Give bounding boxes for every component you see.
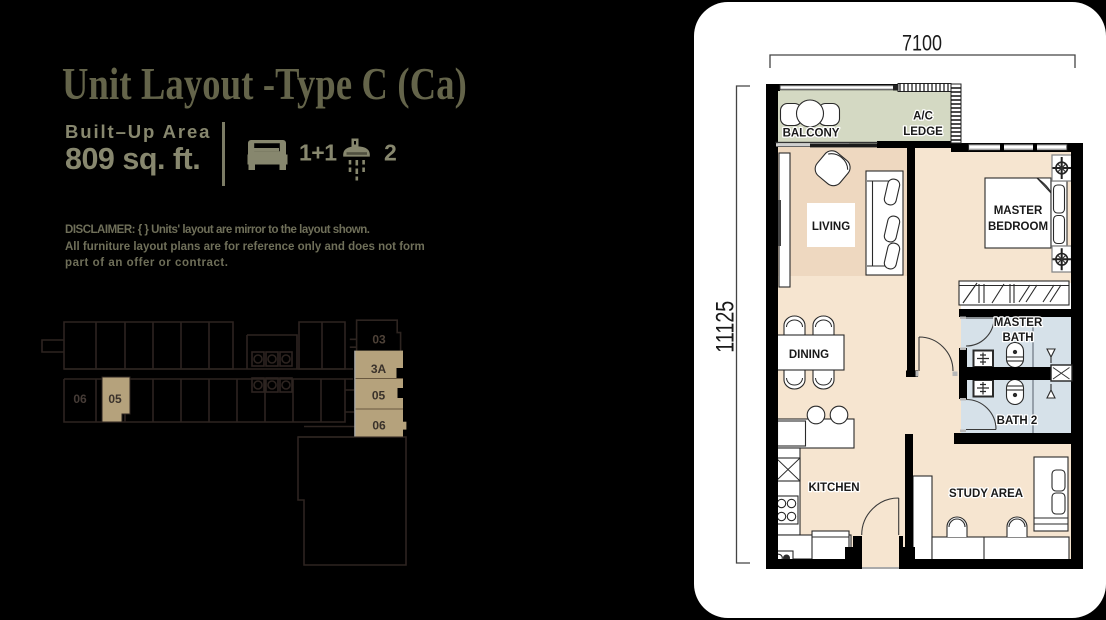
svg-text:MASTER: MASTER <box>994 317 1043 329</box>
svg-text:KITCHEN: KITCHEN <box>808 482 859 494</box>
svg-text:BATH: BATH <box>1002 332 1033 344</box>
svg-text:BEDROOM: BEDROOM <box>988 221 1048 233</box>
svg-text:LIVING: LIVING <box>812 221 850 233</box>
svg-text:BALCONY: BALCONY <box>783 128 840 140</box>
svg-text:DINING: DINING <box>789 349 829 361</box>
svg-text:BATH 2: BATH 2 <box>997 415 1038 427</box>
svg-text:LEDGE: LEDGE <box>903 126 943 138</box>
svg-text:A/C: A/C <box>913 111 933 123</box>
svg-text:7100: 7100 <box>902 31 942 56</box>
svg-text:11125: 11125 <box>712 301 740 353</box>
svg-text:STUDY AREA: STUDY AREA <box>949 488 1023 500</box>
svg-text:MASTER: MASTER <box>994 205 1043 217</box>
